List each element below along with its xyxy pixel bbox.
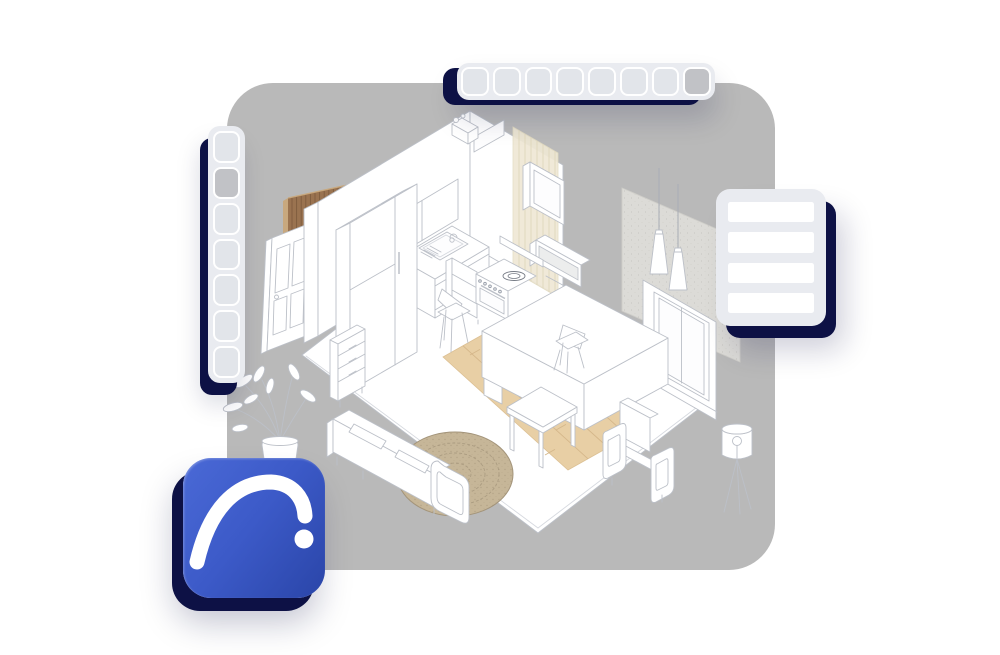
top-toolbar-button-7[interactable] — [652, 67, 680, 96]
top-toolbar-button-5[interactable] — [588, 67, 616, 96]
top-toolbar-button-2[interactable] — [493, 67, 521, 96]
left-toolbar-button-6[interactable] — [213, 310, 240, 342]
left-toolbar-button-2[interactable] — [213, 167, 240, 199]
top-toolbar — [457, 63, 715, 100]
left-toolbar-button-4[interactable] — [213, 239, 240, 271]
left-toolbar-button-5[interactable] — [213, 274, 240, 306]
top-toolbar-button-4[interactable] — [556, 67, 584, 96]
top-toolbar-button-3[interactable] — [525, 67, 553, 96]
right-list-panel — [716, 189, 826, 326]
panel-row-4[interactable] — [728, 293, 814, 313]
top-toolbar-button-6[interactable] — [620, 67, 648, 96]
left-toolbar-button-3[interactable] — [213, 203, 240, 235]
left-toolbar — [208, 126, 245, 383]
panel-row-1[interactable] — [728, 202, 814, 222]
panel-row-3[interactable] — [728, 263, 814, 283]
left-toolbar-button-7[interactable] — [213, 346, 240, 378]
illustration-stage — [0, 0, 1000, 655]
archicad-arc-logo-icon — [183, 458, 325, 598]
panel-row-2[interactable] — [728, 232, 814, 252]
archicad-app-icon[interactable] — [183, 458, 325, 598]
top-toolbar-button-1[interactable] — [461, 67, 489, 96]
top-toolbar-button-8[interactable] — [683, 67, 711, 96]
floor-lamp-icon — [722, 424, 752, 514]
left-toolbar-button-1[interactable] — [213, 131, 240, 163]
